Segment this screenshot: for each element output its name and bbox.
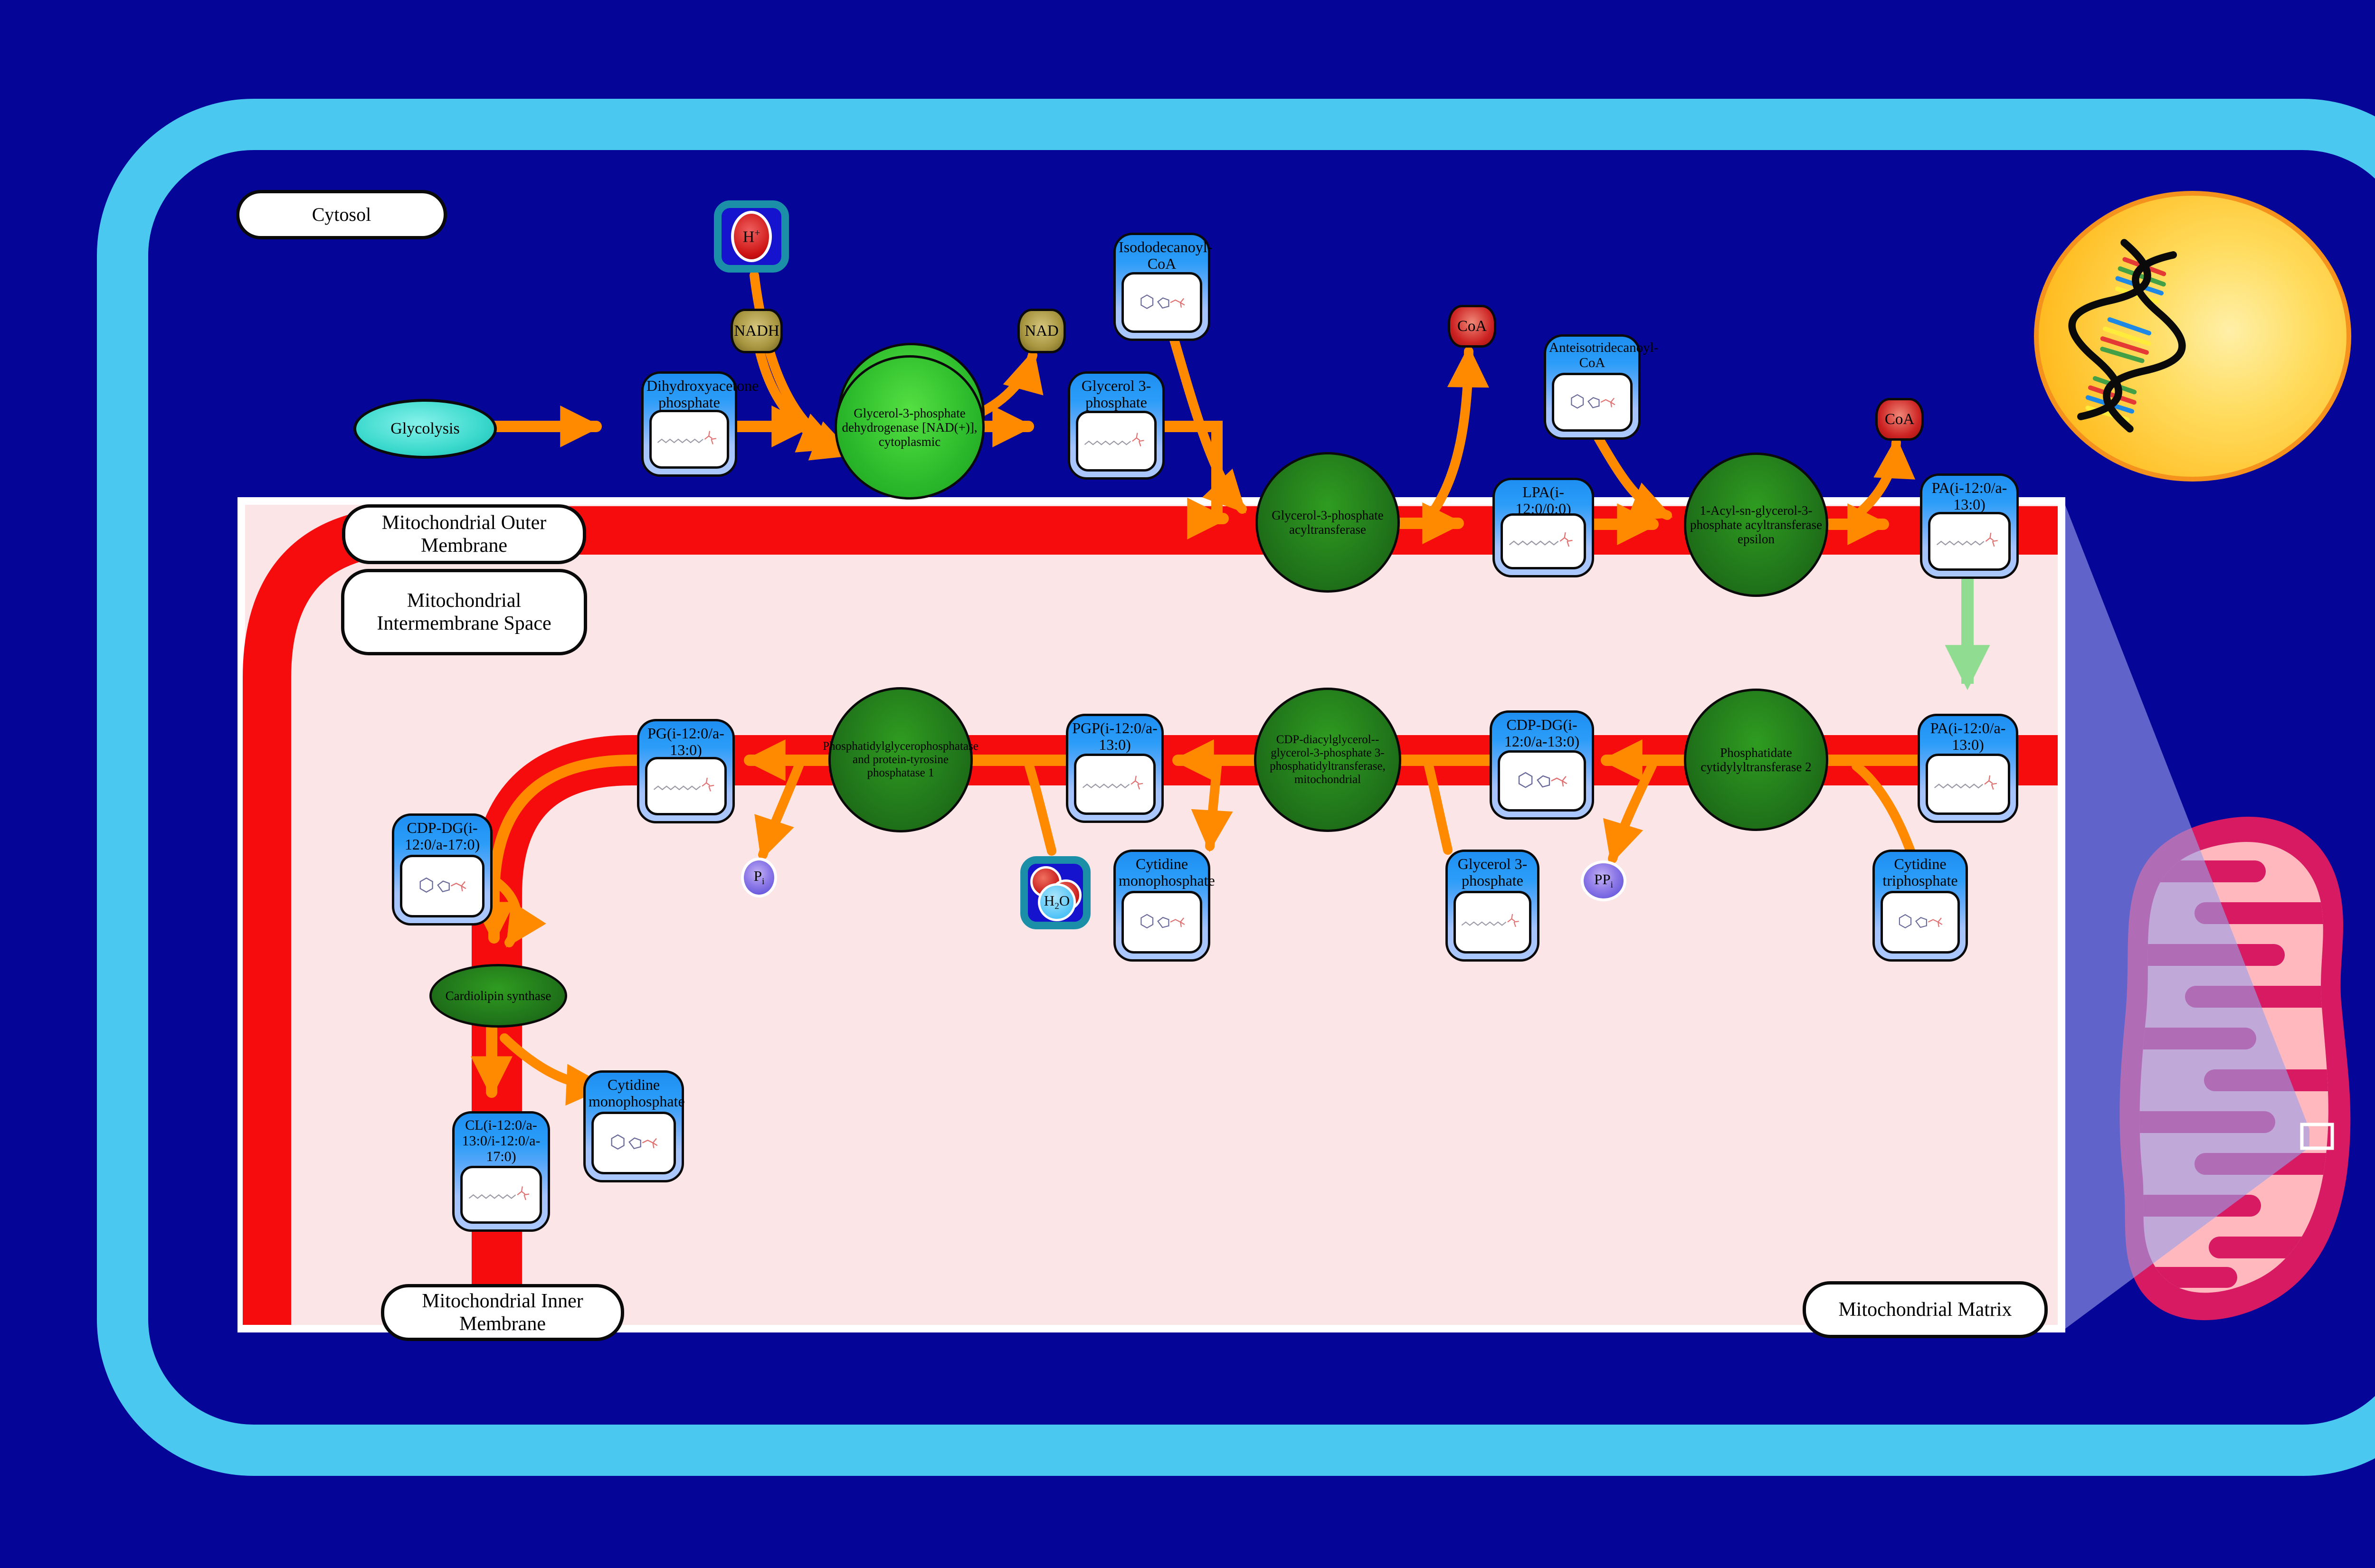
cofactor-nad[interactable]: NAD (1017, 309, 1066, 353)
metabolite-label: Cytidine triphosphate (1878, 856, 1963, 889)
edge-gpd-to-nad[interactable] (978, 355, 1033, 414)
structure-thumbnail (1501, 513, 1586, 569)
structure-thumbnail (1881, 891, 1960, 954)
cofactor-phosphate[interactable]: Pi (741, 858, 777, 897)
cofactor-coa-2[interactable]: CoA (1875, 398, 1924, 441)
metabolite-label: LPA(i-12:0/0:0) (1498, 484, 1589, 517)
metabolite-node-anteisotridecanoyl-coa[interactable]: Anteisotridecanoyl-CoA (1544, 334, 1641, 440)
metabolite-node-pgp[interactable]: PGP(i-12:0/a-13:0) (1066, 714, 1164, 823)
cofactor-water-icon[interactable]: H2O (1020, 856, 1091, 929)
enzyme-label: Glycerol-3-phosphate acyltransferase (1261, 508, 1395, 537)
metabolite-node-cdpdg-17[interactable]: CDP-DG(i-12:0/a-17:0) (392, 813, 493, 926)
metabolite-label: PGP(i-12:0/a-13:0) (1071, 720, 1159, 753)
enzyme-label: Glycerol-3-phosphate dehydrogenase [NAD(… (840, 406, 979, 449)
edge-anteisotridecanoylcoa-to-agpat[interactable] (1597, 435, 1667, 515)
enzyme-label: 1-Acyl-sn-glycerol-3-phosphate acyltrans… (1689, 503, 1823, 547)
metabolite-node-isododecanoyl-coa[interactable]: Isododecanoyl-CoA (1113, 233, 1210, 341)
enzyme-node-phosphatidate-cytidylyltransferase-2[interactable]: Phosphatidate cytidylyltransferase 2 (1684, 689, 1828, 831)
metabolite-label: Cytidine monophosphate (589, 1077, 679, 1110)
metabolite-node-cmp-center[interactable]: Cytidine monophosphate (1113, 850, 1210, 962)
metabolite-node-pg[interactable]: PG(i-12:0/a-13:0) (637, 719, 735, 823)
structure-thumbnail (645, 757, 727, 815)
structure-thumbnail (400, 855, 484, 917)
metabolite-node-pa-top[interactable]: PA(i-12:0/a-13:0) (1920, 473, 2019, 579)
structure-thumbnail (460, 1166, 542, 1224)
process-node-glycolysis[interactable]: Glycolysis (353, 399, 497, 459)
structure-thumbnail (1076, 411, 1157, 472)
metabolite-label: Anteisotridecanoyl-CoA (1549, 340, 1635, 371)
enzyme-node-pgp-phosphatase-1[interactable]: Phosphatidylglycerophosphatase and prote… (828, 687, 973, 832)
enzyme-label: Cardiolipin synthase (446, 989, 551, 1003)
cofactor-proton-icon[interactable]: H+ (714, 200, 789, 273)
enzyme-label: Phosphatidylglycerophosphatase and prote… (823, 740, 978, 780)
metabolite-node-pa-bottom[interactable]: PA(i-12:0/a-13:0) (1918, 714, 2018, 823)
structure-thumbnail (1926, 754, 2010, 815)
cofactor-coa-1[interactable]: CoA (1448, 305, 1496, 348)
enzyme-node-cdpdag-g3p-phosphatidyltransferase[interactable]: CDP-diacylglycerol--glycerol-3-phosphate… (1254, 688, 1401, 832)
metabolite-label: PA(i-12:0/a-13:0) (1923, 720, 2013, 753)
metabolite-label: PA(i-12:0/a-13:0) (1925, 480, 2014, 513)
structure-thumbnail (1453, 891, 1531, 954)
structure-thumbnail (1074, 754, 1156, 815)
metabolite-label: Cytidine monophosphate (1119, 856, 1205, 889)
metabolite-label: CDP-DG(i-12:0/a-13:0) (1495, 717, 1589, 750)
metabolite-node-cdpdg-13[interactable]: CDP-DG(i-12:0/a-13:0) (1490, 710, 1594, 820)
structure-thumbnail (1121, 891, 1202, 954)
cofactor-pyrophosphate[interactable]: PPi (1581, 860, 1626, 901)
inner-membrane-band (497, 760, 2058, 1325)
enzyme-label: CDP-diacylglycerol--glycerol-3-phosphate… (1259, 733, 1396, 786)
label-intermembrane-space: Mitochondrial Intermembrane Space (341, 569, 587, 655)
metabolite-label: CL(i-12:0/a-13:0/i-12:0/a-17:0) (457, 1117, 545, 1164)
metabolite-node-lpa[interactable]: LPA(i-12:0/0:0) (1492, 478, 1594, 577)
label-outer-membrane: Mitochondrial Outer Membrane (342, 504, 586, 564)
metabolite-label: Dihydroxyacetone phosphate (646, 378, 732, 411)
structure-thumbnail (1928, 512, 2011, 571)
metabolite-node-ctp[interactable]: Cytidine triphosphate (1872, 850, 1968, 962)
metabolite-node-cardiolipin[interactable]: CL(i-12:0/a-13:0/i-12:0/a-17:0) (452, 1111, 550, 1232)
label-cytosol: Cytosol (236, 190, 447, 239)
edge-gpat-to-coa[interactable] (1431, 351, 1469, 515)
label-matrix: Mitochondrial Matrix (1803, 1281, 2048, 1338)
enzyme-node-gpat[interactable]: Glycerol-3-phosphate acyltransferase (1255, 452, 1400, 593)
enzyme-node-gpd-cytoplasmic[interactable]: Glycerol-3-phosphate dehydrogenase [NAD(… (835, 355, 985, 500)
metabolite-node-cmp-left[interactable]: Cytidine monophosphate (583, 1070, 684, 1182)
structure-thumbnail (1498, 750, 1586, 812)
enzyme-node-cardiolipin-synthase[interactable]: Cardiolipin synthase (429, 964, 567, 1028)
metabolite-node-dhap[interactable]: Dihydroxyacetone phosphate (641, 371, 737, 477)
enzyme-label: Phosphatidate cytidylyltransferase 2 (1689, 746, 1823, 774)
nucleus-illustration (2034, 191, 2351, 482)
edge-agpat-to-coa[interactable] (1856, 443, 1896, 516)
structure-thumbnail (591, 1112, 676, 1174)
metabolite-label: PG(i-12:0/a-13:0) (642, 725, 730, 758)
cofactor-nadh[interactable]: NADH (731, 309, 783, 353)
proton-symbol: H+ (731, 211, 772, 262)
metabolite-label: Glycerol 3-phosphate (1073, 378, 1159, 411)
enzyme-node-agpat-epsilon[interactable]: 1-Acyl-sn-glycerol-3-phosphate acyltrans… (1684, 453, 1828, 597)
label-inner-membrane: Mitochondrial Inner Membrane (381, 1284, 624, 1341)
metabolite-label: Glycerol 3-phosphate (1451, 856, 1534, 889)
metabolite-node-g3p-bottom[interactable]: Glycerol 3-phosphate (1445, 850, 1539, 962)
structure-thumbnail (649, 410, 729, 469)
metabolite-node-g3p-top[interactable]: Glycerol 3-phosphate (1068, 371, 1165, 480)
water-molecule-symbol: H2O (1029, 866, 1082, 919)
structure-thumbnail (1552, 373, 1633, 432)
metabolite-label: Isododecanoyl-CoA (1119, 239, 1205, 272)
structure-thumbnail (1121, 272, 1202, 333)
metabolite-label: CDP-DG(i-12:0/a-17:0) (397, 820, 487, 853)
